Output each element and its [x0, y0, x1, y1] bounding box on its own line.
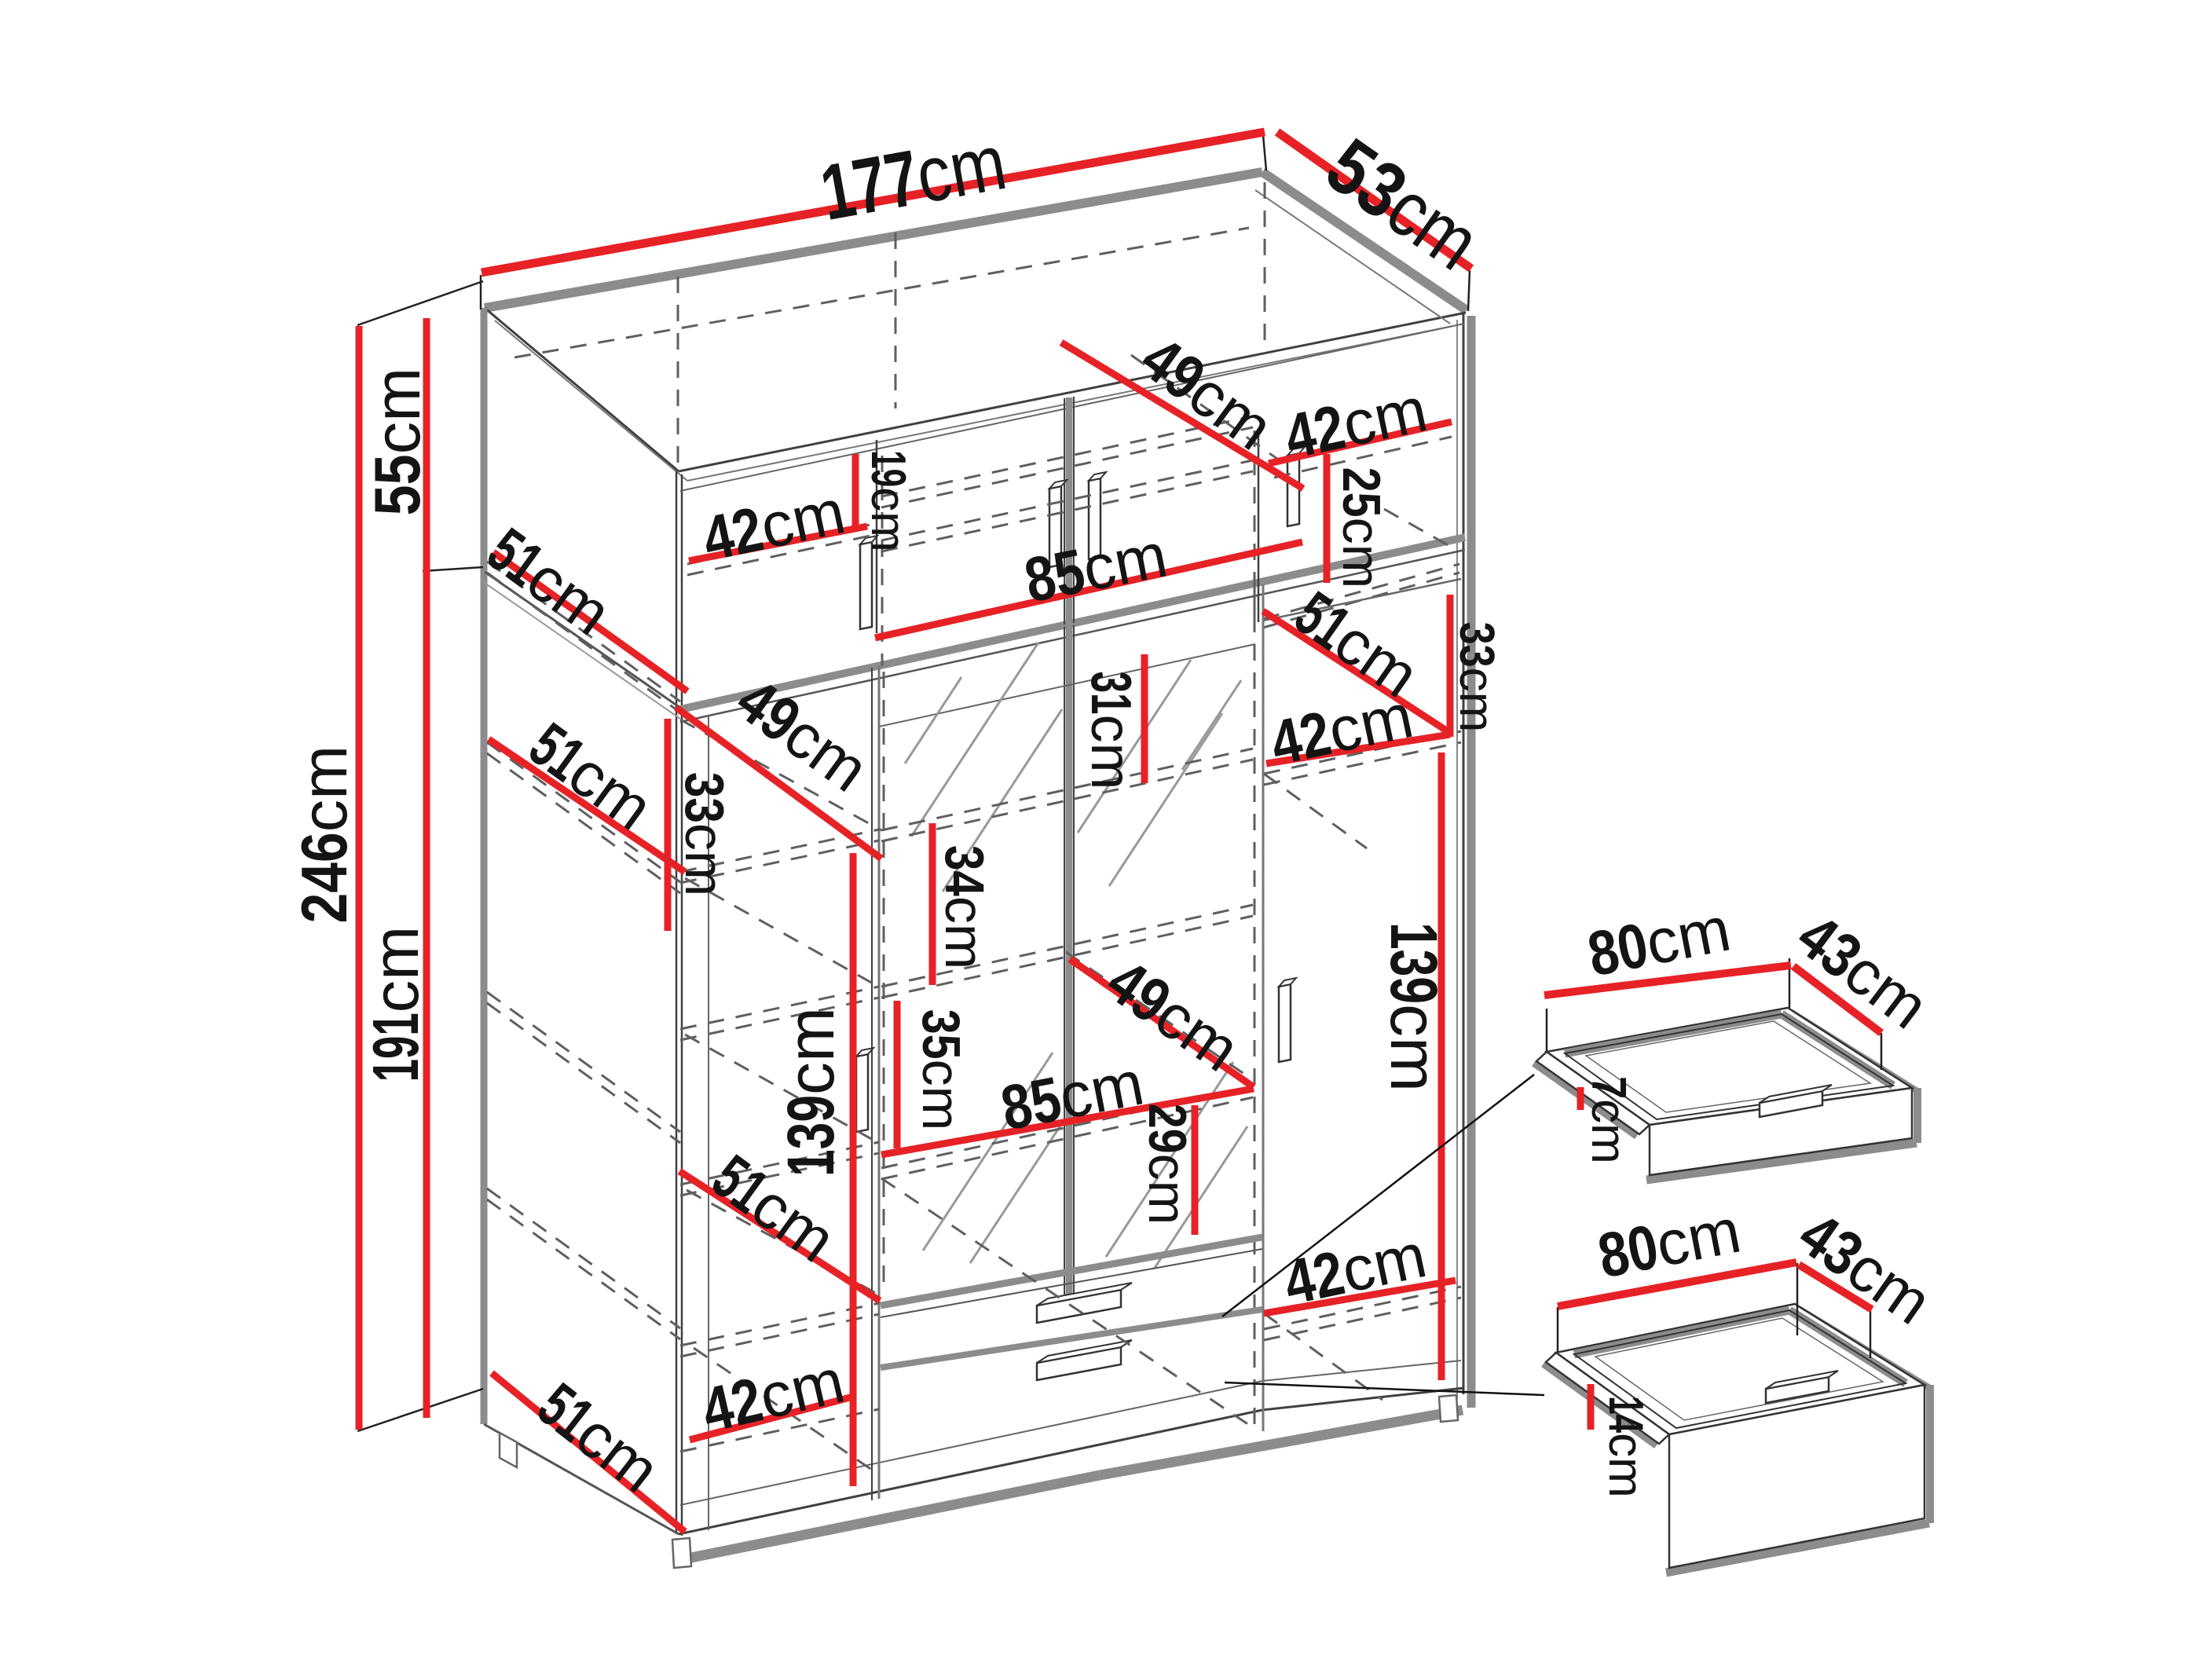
svg-text:35cm: 35cm: [911, 1009, 971, 1131]
svg-text:31cm: 31cm: [1079, 672, 1142, 790]
svg-text:55cm: 55cm: [361, 368, 434, 516]
svg-text:139cm: 139cm: [774, 1007, 848, 1177]
svg-text:33cm: 33cm: [674, 772, 735, 896]
svg-text:25cm: 25cm: [1331, 467, 1391, 589]
svg-text:19cm: 19cm: [862, 450, 916, 552]
svg-text:33cm: 33cm: [1450, 622, 1504, 733]
svg-text:191cm: 191cm: [359, 926, 432, 1082]
svg-text:7cm: 7cm: [1582, 1076, 1636, 1164]
svg-text:139cm: 139cm: [1377, 922, 1451, 1092]
svg-text:14cm: 14cm: [1599, 1396, 1654, 1498]
svg-text:34cm: 34cm: [934, 845, 995, 969]
svg-text:246cm: 246cm: [287, 745, 361, 924]
svg-text:29cm: 29cm: [1137, 1104, 1197, 1225]
